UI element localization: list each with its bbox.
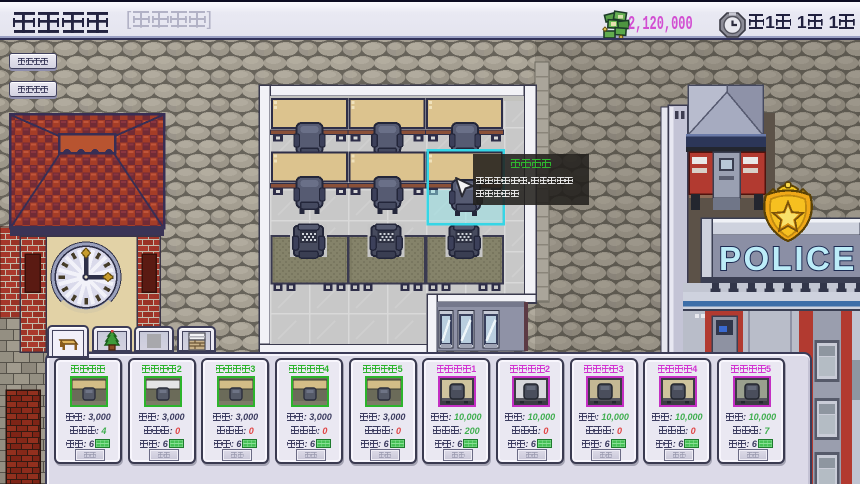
svg-text:POLICE: POLICE — [719, 240, 857, 277]
